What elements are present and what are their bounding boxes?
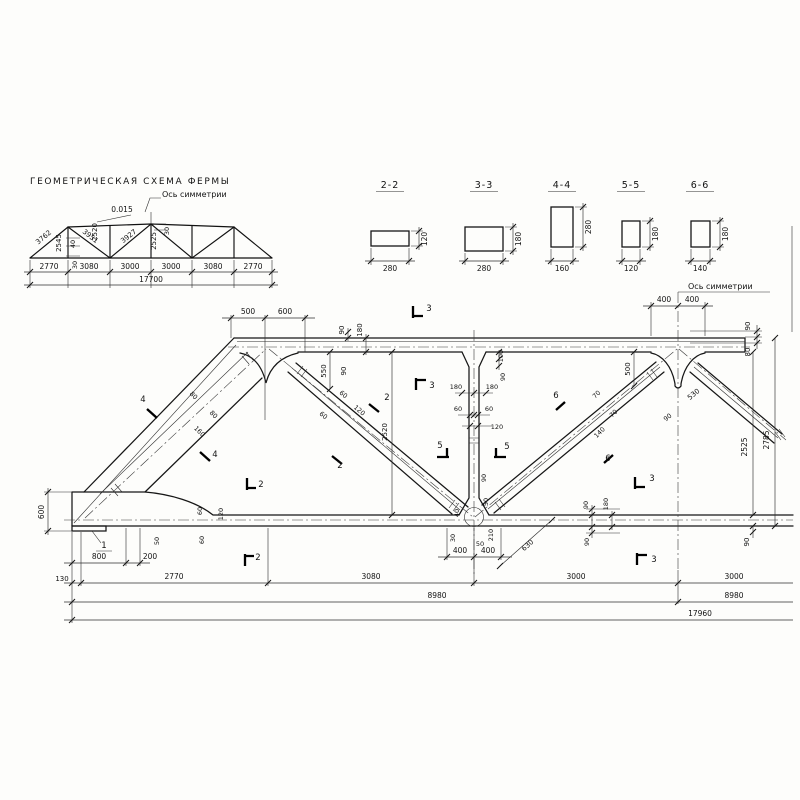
label-dim-600-left: 600 <box>37 505 46 520</box>
label-mark-4-b: 4 <box>212 450 217 460</box>
label-dim-2770-el: 2770 <box>164 572 183 581</box>
label-sec55-height: 180 <box>651 227 660 242</box>
label-dim-90-br: 90 <box>743 538 751 547</box>
label-dim-400-bl: 400 <box>453 546 468 555</box>
label-dim-120-v: 120 <box>491 423 503 431</box>
label-sec55-width: 120 <box>624 264 639 273</box>
label-dim-630: 630 <box>520 538 535 553</box>
section-2-2-ext <box>371 231 423 265</box>
label-dim-120-d1: 120 <box>352 403 367 417</box>
label-dim-60-bca: 60 <box>196 507 204 515</box>
section-5-5-dimlines <box>616 217 650 261</box>
label-scheme-panel-5: 3080 <box>203 262 222 271</box>
section-marks <box>147 306 647 566</box>
cross-sections: 2-2 3-3 4-4 5-5 <box>365 180 724 265</box>
label-dim-50-vb: 50 <box>482 498 490 506</box>
label-dim-600-top: 600 <box>278 307 293 316</box>
section-2-2-dimlines <box>365 227 419 261</box>
scheme-axis-leader <box>145 198 161 224</box>
mark-3-top-a <box>413 306 423 318</box>
label-mark-6-b: 6 <box>605 454 610 464</box>
section-2-2-title: 2-2 <box>381 180 400 191</box>
section-6-6: 6-6 <box>685 180 724 265</box>
label-dim-60-vr: 60 <box>485 405 493 413</box>
label-dim-50-bc: 50 <box>153 537 161 545</box>
label-scheme-panel-3: 3000 <box>120 262 139 271</box>
elevation-axis-label: Ось симметрии <box>688 282 753 291</box>
label-scheme-vert-2: 2520 <box>91 223 99 241</box>
section-3-3-ext <box>465 227 517 265</box>
label-dim-2525: 2525 <box>740 437 749 456</box>
right-diagonal-inner <box>694 367 778 438</box>
label-mark-6-a: 6 <box>553 391 558 401</box>
label-dim-530: 530 <box>686 387 701 402</box>
label-dim-550: 550 <box>320 364 328 377</box>
section-6-6-shape <box>691 221 710 247</box>
label-scheme-vert-1: 2545 <box>55 234 63 252</box>
label-dim-17960: 17960 <box>688 609 712 618</box>
scheme-axis-label: Ось симметрии <box>162 190 227 199</box>
centerlines <box>64 292 793 575</box>
apex1-gusset <box>240 353 298 383</box>
section-3-3-ticks <box>462 224 516 264</box>
label-scheme-diag-1: 3762 <box>34 229 53 247</box>
label-dim-80-d0a: 80 <box>188 390 200 402</box>
label-mark-3-d: 3 <box>651 555 656 565</box>
label-mark-4-a: 4 <box>140 395 145 405</box>
end-diagonal-inner <box>100 352 248 494</box>
label-dim-90-g1: 90 <box>340 367 348 376</box>
section-2-2-shape <box>371 231 409 246</box>
mark-3-bottom-b <box>637 553 647 565</box>
section-6-6-ext <box>691 221 724 265</box>
label-scheme-total: 17700 <box>139 275 163 284</box>
label-mark-5-a: 5 <box>437 441 442 451</box>
first-diagonal-inner <box>292 368 460 510</box>
label-dim-140-d2: 140 <box>592 425 606 439</box>
label-dim-80-tr: 80 <box>744 348 752 357</box>
label-dim-180-tc: 180 <box>356 323 364 336</box>
label-dim-3000-a: 3000 <box>566 572 585 581</box>
second-diagonal <box>482 362 664 513</box>
label-dim-30-c: 30 <box>449 534 457 542</box>
section-2-2: 2-2 <box>365 180 423 265</box>
label-scheme-panel-1: 2770 <box>39 262 58 271</box>
label-dim-70-d2a: 70 <box>591 389 603 401</box>
label-sec66-height: 180 <box>721 227 730 242</box>
label-dim-160-d0: 160 <box>192 424 206 438</box>
end-diagonal <box>84 338 262 492</box>
label-dim-400-br: 400 <box>481 546 496 555</box>
label-mark-3-c: 3 <box>649 474 654 484</box>
label-dim-180-vr: 180 <box>486 383 498 391</box>
bearing-plate <box>72 526 106 531</box>
label-dim-180-br: 180 <box>602 498 610 510</box>
section-4-4-title: 4-4 <box>553 180 572 191</box>
blueprint-page: ГЕОМЕТРИЧЕСКАЯ СХЕМА ФЕРМЫ Ось симметрии… <box>0 0 800 800</box>
label-mark-2-c: 2 <box>384 393 389 403</box>
label-dim-400-tr: 400 <box>685 295 700 304</box>
label-dim-800: 800 <box>92 552 107 561</box>
label-mark-5-b: 5 <box>504 442 509 452</box>
truss-elevation <box>64 226 793 575</box>
label-dim-3000-b: 3000 <box>724 572 743 581</box>
label-scheme-off-40: 40 <box>69 240 77 248</box>
label-dim-40-c: 40 <box>453 509 461 517</box>
section-3-3-title: 3-3 <box>475 180 494 191</box>
dimension-labels: 0.01537622545395125203927252540303027703… <box>34 205 771 618</box>
label-dim-8980-a: 8980 <box>427 591 446 600</box>
truss-drawing: ГЕОМЕТРИЧЕСКАЯ СХЕМА ФЕРМЫ Ось симметрии… <box>0 0 800 800</box>
label-dim-2520: 2520 <box>381 423 389 441</box>
section-4-4-ticks <box>548 204 586 264</box>
label-dim-500: 500 <box>241 307 256 316</box>
member-break-ticks <box>111 352 785 511</box>
section-6-6-title: 6-6 <box>691 180 710 191</box>
label-dim-90-tc: 90 <box>338 326 346 335</box>
dim-ticks <box>45 303 778 623</box>
label-sec66-width: 140 <box>693 264 708 273</box>
top-chord <box>234 338 745 352</box>
label-dim-60-bcb: 60 <box>198 536 206 544</box>
mark-4-a <box>147 409 157 418</box>
label-sec22-width: 280 <box>383 264 398 273</box>
label-dim-130: 130 <box>55 575 68 583</box>
mark-2-diag-a <box>369 404 379 412</box>
label-scheme-vert-mid: 2525 <box>150 232 158 250</box>
label-mark-2-a: 2 <box>258 480 263 490</box>
label-dim-180-vl: 180 <box>450 383 462 391</box>
label-scheme-panel-2: 3080 <box>79 262 98 271</box>
label-dim-2785: 2785 <box>762 430 771 449</box>
label-mark-2-d: 2 <box>337 461 342 471</box>
label-mark-3-a: 3 <box>426 304 431 314</box>
label-dim-90-vb: 90 <box>480 474 488 482</box>
label-dim-200: 200 <box>143 552 158 561</box>
label-dim-90-brb: 90 <box>583 538 591 546</box>
label-dim-100-v: 100 <box>497 350 505 362</box>
label-mark-3-b: 3 <box>429 381 434 391</box>
mark-3-top-b <box>416 378 426 390</box>
mark-3-bottom-a <box>635 477 645 489</box>
label-dim-60-vl: 60 <box>454 405 462 413</box>
label-dim-90-ax: 90 <box>662 412 673 423</box>
label-sec33-width: 280 <box>477 264 492 273</box>
label-scheme-panel-6: 2770 <box>243 262 262 271</box>
scheme-slope-line <box>97 215 131 222</box>
drawing-title: ГЕОМЕТРИЧЕСКАЯ СХЕМА ФЕРМЫ <box>30 177 230 187</box>
label-dim-90-tr: 90 <box>744 322 752 331</box>
section-3-3-dimlines <box>459 223 513 261</box>
section-5-5-title: 5-5 <box>622 180 641 191</box>
end-block-inner-line <box>74 345 236 523</box>
label-scheme-off-30a: 30 <box>71 261 79 269</box>
section-5-5-ticks <box>619 218 653 264</box>
label-callout-1: 1 <box>101 541 106 551</box>
section-6-6-dimlines <box>685 217 720 261</box>
label-dim-120-bc: 120 <box>217 508 225 520</box>
section-4-4: 4-4 <box>545 180 587 265</box>
label-dim-80-d0b: 80 <box>208 409 220 421</box>
section-5-5-shape <box>622 221 640 247</box>
section-3-3-shape <box>465 227 503 251</box>
label-sec22-height: 120 <box>420 232 429 247</box>
section-4-4-shape <box>551 207 573 247</box>
section-6-6-ticks <box>688 218 723 264</box>
section-3-3: 3-3 <box>459 180 517 265</box>
label-sec33-height: 180 <box>514 232 523 247</box>
label-dim-8980-b: 8980 <box>724 591 743 600</box>
label-dim-60-d1b: 60 <box>318 410 329 421</box>
label-sec44-width: 160 <box>555 264 570 273</box>
mark-4-b <box>200 452 210 461</box>
label-dim-3080-el: 3080 <box>361 572 380 581</box>
label-dim-210-c: 210 <box>487 529 495 541</box>
dim-lines <box>48 306 793 620</box>
section-4-4-ext <box>551 207 587 265</box>
label-scheme-slope: 0.015 <box>111 205 133 214</box>
label-dim-90-v: 90 <box>499 373 507 381</box>
section-5-5: 5-5 <box>616 180 654 265</box>
mark-6-a <box>556 402 565 410</box>
section-5-5-ext <box>622 221 654 265</box>
label-scheme-panel-4: 3000 <box>161 262 180 271</box>
label-dim-500-ax: 500 <box>624 362 632 375</box>
label-dim-90-bra: 90 <box>582 501 590 509</box>
mark-2-bottom <box>245 554 254 566</box>
label-dim-400-tl: 400 <box>657 295 672 304</box>
mark-2-top <box>247 478 256 490</box>
label-scheme-off-30b: 30 <box>163 227 171 235</box>
label-sec44-height: 280 <box>584 220 593 235</box>
label-mark-2-b: 2 <box>255 553 260 563</box>
